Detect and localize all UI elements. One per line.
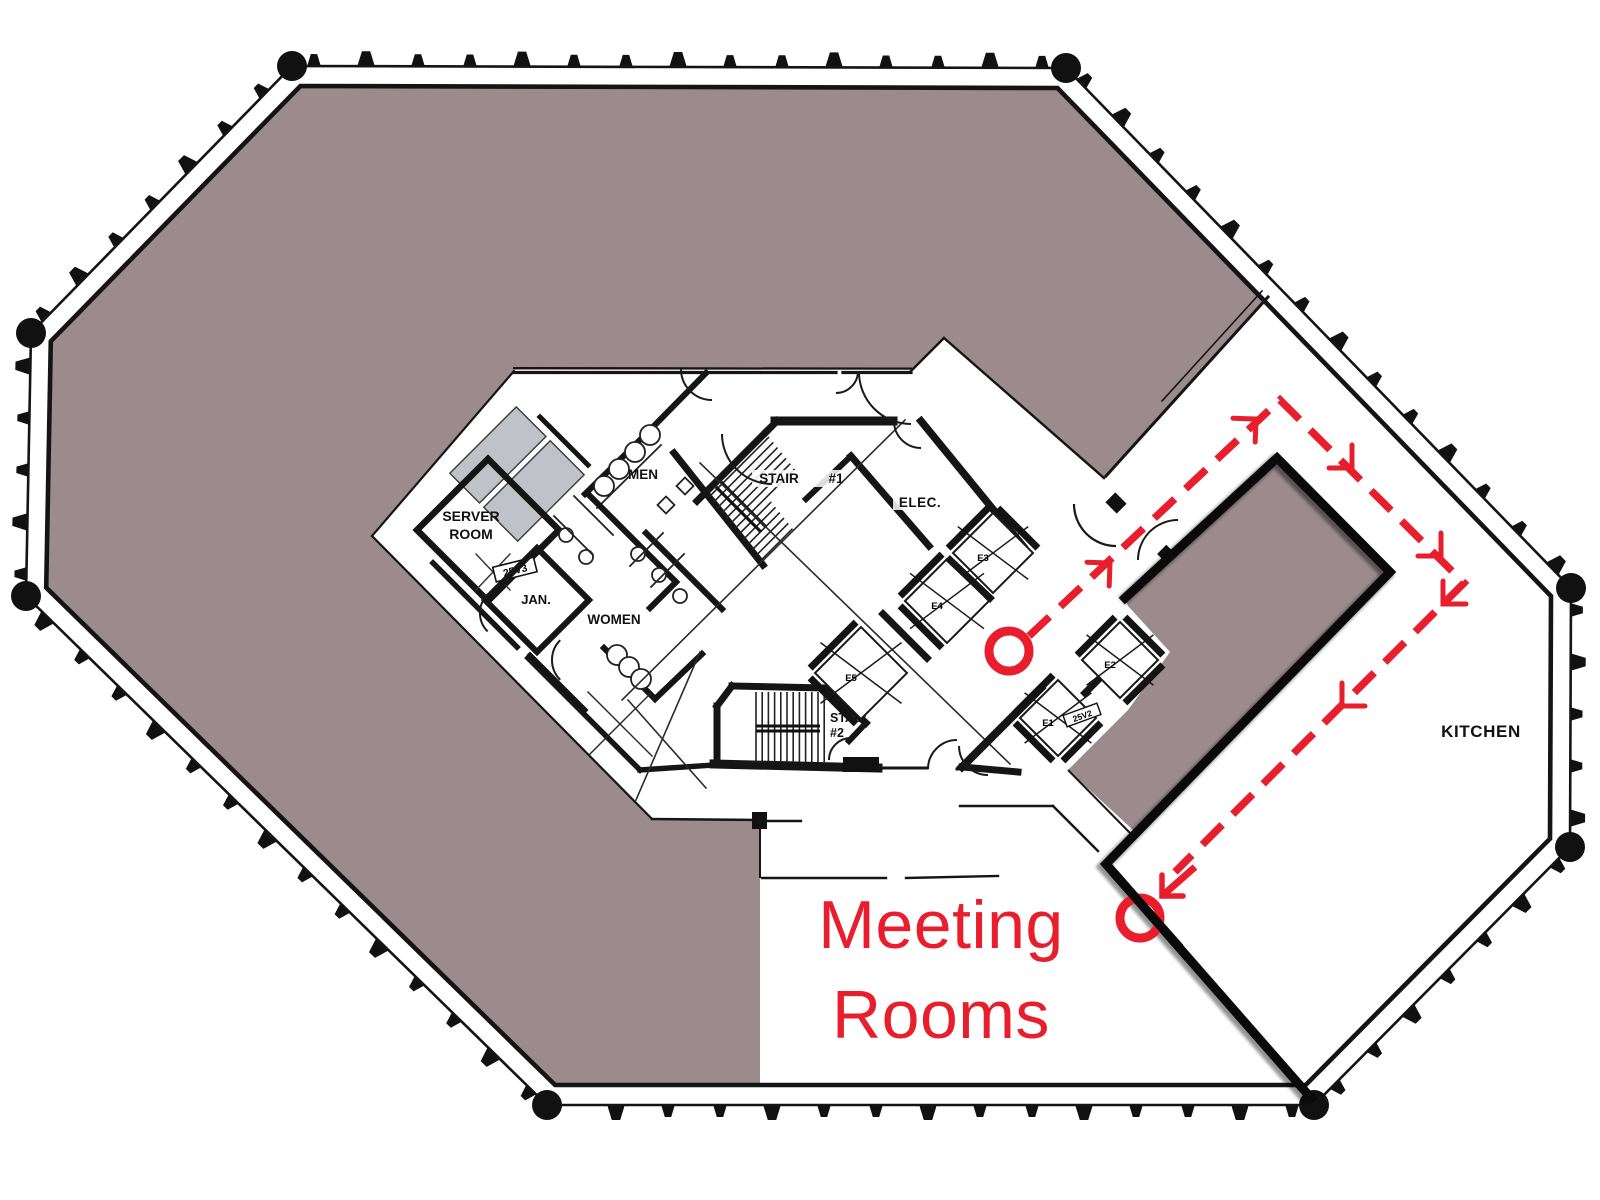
svg-text:MEN: MEN <box>628 467 658 482</box>
svg-text:ELEC.: ELEC. <box>899 495 941 510</box>
svg-text:KITCHEN: KITCHEN <box>1441 722 1521 741</box>
svg-text:SERVER: SERVER <box>442 508 499 524</box>
svg-text:Meeting: Meeting <box>818 887 1063 963</box>
svg-text:WOMEN: WOMEN <box>587 612 640 627</box>
svg-text:E2: E2 <box>1104 660 1116 671</box>
svg-text:#2: #2 <box>830 726 844 740</box>
svg-text:Rooms: Rooms <box>832 977 1050 1053</box>
svg-text:E1: E1 <box>1042 718 1054 729</box>
svg-text:JAN.: JAN. <box>521 592 551 607</box>
svg-text:ROOM: ROOM <box>449 526 493 542</box>
svg-text:E3: E3 <box>977 553 989 564</box>
svg-text:E5: E5 <box>845 673 857 684</box>
svg-text:E4: E4 <box>931 601 943 612</box>
